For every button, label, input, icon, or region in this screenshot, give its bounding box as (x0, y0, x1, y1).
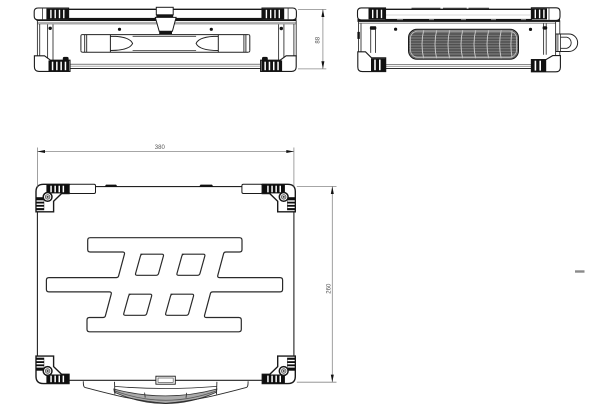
svg-text:380: 380 (155, 145, 166, 151)
svg-text:88: 88 (316, 36, 322, 43)
svg-text:260: 260 (327, 283, 333, 294)
